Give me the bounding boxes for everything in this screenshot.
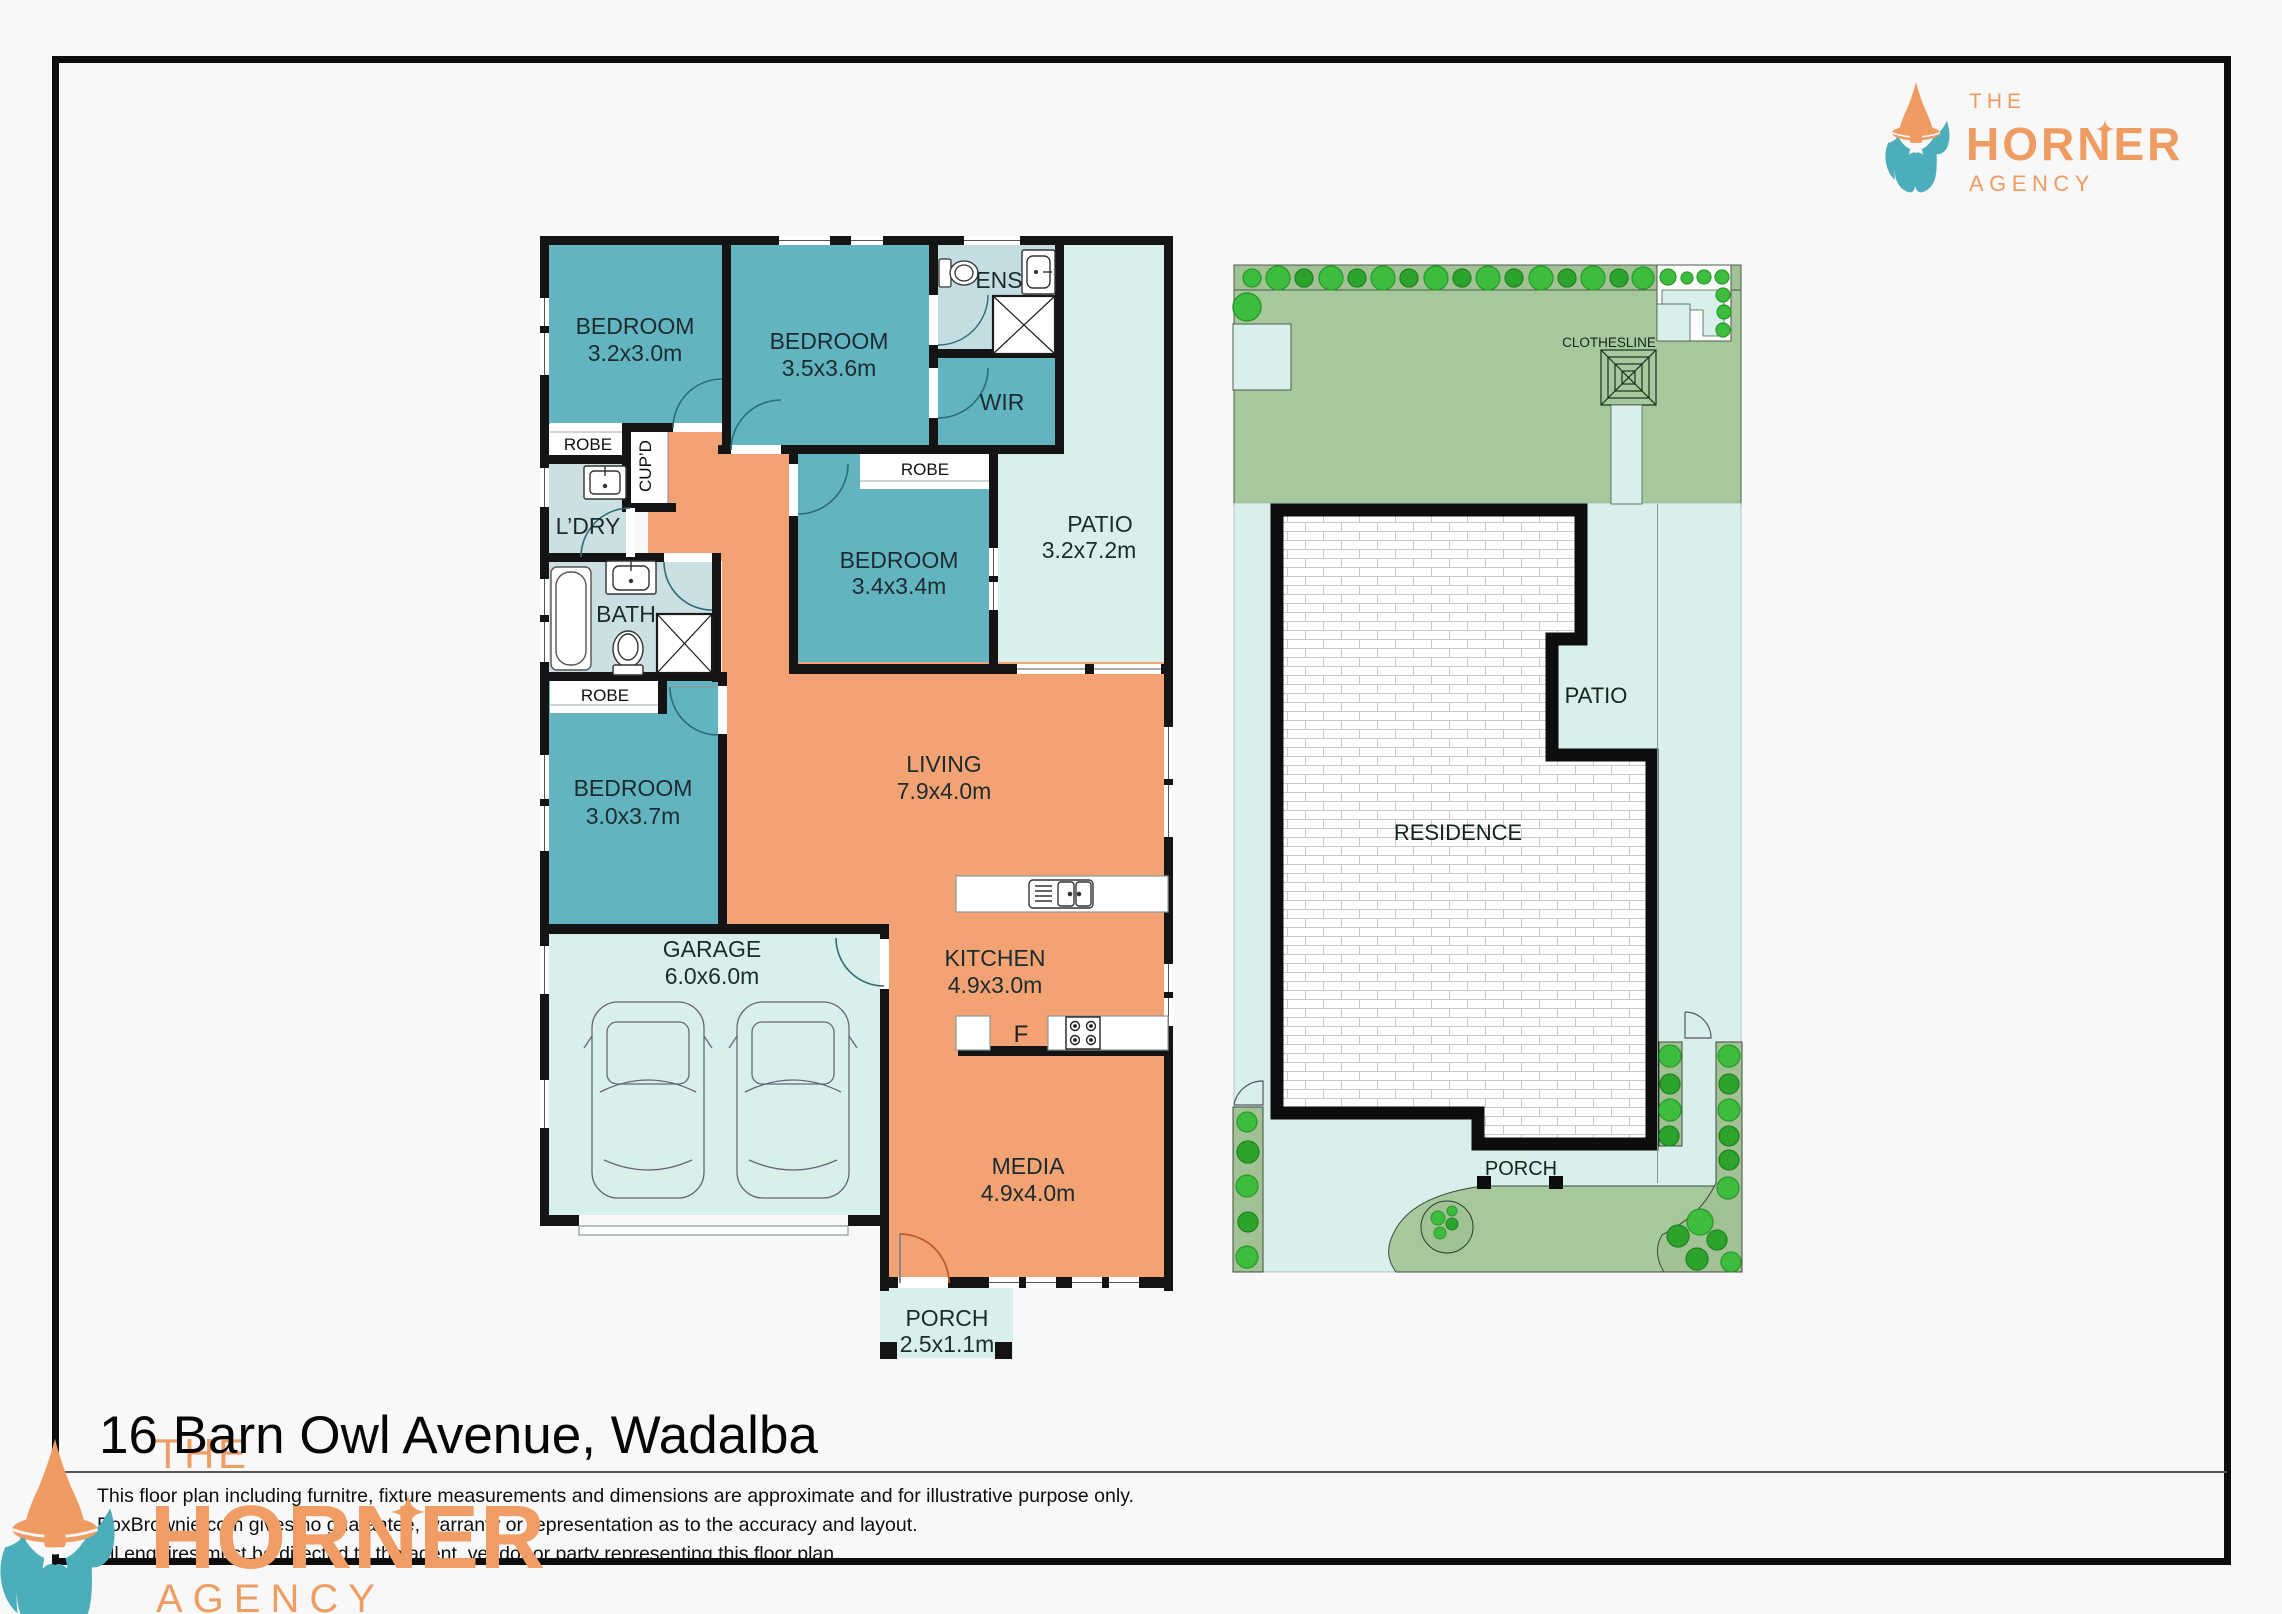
svg-text:ROBE: ROBE [564, 435, 612, 454]
svg-text:6.0x6.0m: 6.0x6.0m [665, 963, 760, 989]
svg-text:BEDROOM: BEDROOM [840, 547, 959, 573]
svg-text:THE: THE [1969, 90, 2026, 113]
svg-text:LIVING: LIVING [906, 751, 981, 777]
svg-text:MEDIA: MEDIA [992, 1153, 1066, 1179]
svg-text:GARAGE: GARAGE [663, 936, 761, 962]
svg-text:L’DRY: L’DRY [556, 513, 621, 539]
svg-text:HORNER: HORNER [1966, 118, 2183, 170]
svg-text:3.2x3.0m: 3.2x3.0m [588, 340, 683, 366]
svg-text:AGENCY: AGENCY [156, 1577, 385, 1614]
svg-text:4.9x3.0m: 4.9x3.0m [948, 972, 1043, 998]
svg-text:HORNER: HORNER [150, 1488, 546, 1588]
svg-text:AGENCY: AGENCY [1969, 171, 2095, 196]
svg-text:PATIO: PATIO [1067, 511, 1133, 537]
svg-text:BEDROOM: BEDROOM [770, 328, 889, 354]
svg-text:KITCHEN: KITCHEN [945, 945, 1046, 971]
svg-text:3.2x7.2m: 3.2x7.2m [1042, 537, 1137, 563]
svg-text:CUP’D: CUP’D [636, 440, 655, 492]
svg-text:BEDROOM: BEDROOM [574, 775, 693, 801]
svg-text:ROBE: ROBE [581, 686, 629, 705]
svg-text:3.0x3.7m: 3.0x3.7m [586, 803, 681, 829]
svg-text:3.4x3.4m: 3.4x3.4m [852, 573, 947, 599]
svg-text:ROBE: ROBE [901, 460, 949, 479]
svg-text:PATIO: PATIO [1565, 683, 1628, 708]
svg-text:CLOTHESLINE: CLOTHESLINE [1562, 335, 1656, 350]
svg-text:BATH: BATH [596, 601, 656, 627]
svg-text:WIR: WIR [980, 389, 1025, 415]
svg-text:3.5x3.6m: 3.5x3.6m [782, 355, 877, 381]
svg-text:7.9x4.0m: 7.9x4.0m [897, 778, 992, 804]
svg-text:ENS: ENS [975, 267, 1022, 293]
svg-text:PORCH: PORCH [1485, 1158, 1557, 1180]
svg-text:16 Barn Owl Avenue, Wadalba: 16 Barn Owl Avenue, Wadalba [99, 1406, 818, 1465]
svg-text:PORCH: PORCH [905, 1305, 988, 1331]
svg-text:2.5x1.1m: 2.5x1.1m [900, 1331, 995, 1357]
svg-text:4.9x4.0m: 4.9x4.0m [981, 1180, 1076, 1206]
svg-text:F: F [1014, 1021, 1029, 1048]
svg-text:BEDROOM: BEDROOM [576, 313, 695, 339]
svg-text:RESIDENCE: RESIDENCE [1394, 820, 1522, 845]
